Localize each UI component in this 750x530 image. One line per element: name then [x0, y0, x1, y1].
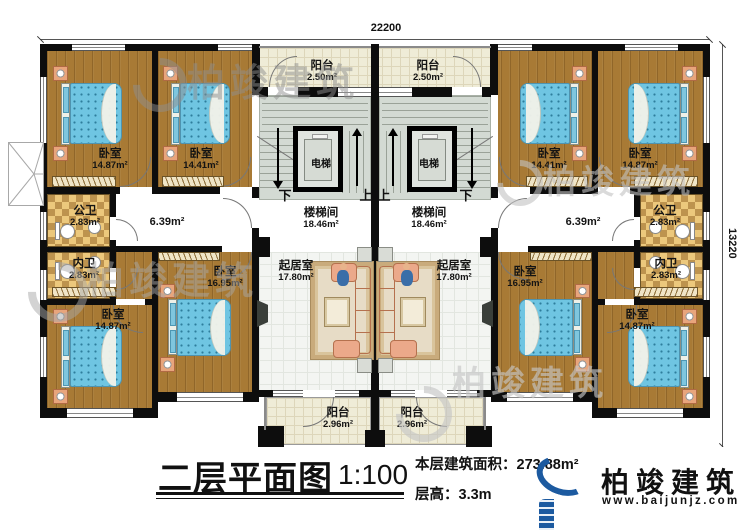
wardrobe	[634, 287, 698, 297]
brand-logo	[536, 457, 600, 519]
door-arc	[612, 219, 634, 241]
wardrobe	[530, 252, 592, 261]
label-public-bath-left: 公卫 2.83m²	[70, 205, 100, 229]
pillow	[571, 117, 577, 143]
stair-arrow	[392, 132, 394, 186]
floor-height-value: 3.3m	[459, 487, 492, 503]
watermark-name: 柏竣建筑	[187, 52, 359, 107]
label-stairwell-left: 楼梯间 18.46m²	[303, 207, 338, 231]
toilet	[690, 222, 695, 240]
bed-headboard	[573, 299, 582, 355]
label-bedroom-br2: 卧室 14.87m²	[619, 309, 654, 333]
roof-overhang-icon	[8, 142, 44, 206]
label-stair-down-left: 下	[278, 185, 291, 204]
side-table	[378, 358, 393, 373]
label-corridor-left: 6.39m²	[150, 216, 185, 228]
drawing-scale: 1:100	[338, 459, 408, 491]
watermark-name: 柏竣建筑	[543, 155, 695, 203]
label-living-right: 起居室 17.80m²	[436, 260, 471, 284]
bed	[520, 83, 570, 144]
title-underline	[156, 492, 404, 495]
wall-segment	[490, 44, 498, 95]
dimension-top-value: 22200	[371, 22, 402, 34]
side-table	[378, 247, 393, 262]
window	[617, 408, 683, 418]
window	[625, 44, 678, 51]
bed-sheet-fold	[634, 84, 649, 143]
floor-height-label: 层高：	[415, 487, 459, 503]
watermark-name: 柏竣建筑	[452, 356, 608, 405]
wall-segment	[634, 240, 640, 268]
label-stair-up-right: 上	[377, 185, 390, 204]
label-elevator-left: 电梯	[311, 155, 331, 170]
window	[703, 212, 710, 240]
label-balcony-bottom-left: 阳台 2.96m²	[323, 407, 353, 431]
nightstand	[682, 389, 697, 404]
pillow	[681, 360, 687, 386]
window	[379, 87, 412, 97]
window	[703, 77, 710, 143]
elevator-door	[422, 134, 438, 139]
pillow	[681, 330, 687, 356]
wall-segment	[480, 237, 493, 257]
pillow	[574, 303, 580, 326]
wall-segment	[379, 390, 391, 397]
watermark-name: 柏竣建筑	[86, 250, 258, 305]
wall-segment	[592, 408, 617, 418]
pillow	[681, 87, 687, 113]
bed	[519, 299, 573, 356]
bed-sheet-fold	[526, 84, 541, 143]
wall-segment	[482, 87, 491, 97]
label-elevator-right: 电梯	[419, 155, 439, 170]
window	[703, 337, 710, 377]
wall-segment	[640, 247, 710, 252]
title-underline-thin	[156, 498, 404, 499]
nightstand	[682, 66, 697, 81]
bed	[628, 83, 680, 144]
coffee-table	[400, 297, 426, 327]
balcony-rail	[379, 46, 491, 48]
label-stairwell-right: 楼梯间 18.46m²	[411, 207, 446, 231]
bed-headboard	[680, 326, 689, 388]
brand-logo-building-icon	[536, 495, 557, 530]
window	[498, 44, 532, 51]
window	[703, 270, 710, 300]
person-figure-head	[403, 263, 410, 270]
bed-headboard	[680, 83, 689, 145]
label-corridor-right: 6.39m²	[566, 216, 601, 228]
floor-plan-screenshot: 卧室 14.87m² 卧室 14.41m² 卧室 14.41m² 卧室 14.8…	[0, 0, 750, 530]
dimension-right-value: 13220	[726, 228, 738, 259]
label-bedroom-bl1: 卧室 14.87m²	[95, 309, 130, 333]
bed-headboard	[570, 83, 579, 145]
brand-logo-swoosh-icon	[531, 450, 594, 503]
floor-plan: 卧室 14.87m² 卧室 14.41m² 卧室 14.41m² 卧室 14.8…	[0, 0, 750, 460]
nightstand	[575, 284, 590, 298]
label-balcony-top-right: 阳台 2.50m²	[413, 60, 443, 84]
bed-sheet-fold	[634, 327, 649, 386]
label-ensuite-bath-right: 内卫 2.83m²	[651, 258, 681, 282]
label-living-left: 起居室 17.80m²	[278, 260, 313, 284]
label-stair-down-right: 下	[459, 185, 472, 204]
label-bedroom-tl2: 卧室 14.41m²	[183, 148, 218, 172]
wall-segment	[683, 408, 710, 418]
label-public-bath-right: 公卫 2.83m²	[650, 205, 680, 229]
pillow	[571, 87, 577, 113]
bed	[628, 326, 680, 387]
pillow	[681, 117, 687, 143]
nightstand	[572, 66, 587, 81]
toilet	[690, 262, 695, 280]
title-block: 二层平面图 1:100 本层建筑面积：273.88m² 层高：3.3m 柏竣建筑…	[0, 447, 750, 530]
wall-segment	[375, 44, 379, 440]
dimension-line-right	[722, 44, 723, 447]
stair-arrow-head	[388, 123, 398, 136]
stair-treads	[380, 131, 408, 193]
dimension-line-top	[40, 39, 710, 40]
floor-area-label: 本层建筑面积：	[415, 457, 517, 473]
wall-segment	[412, 87, 452, 97]
armchair	[390, 340, 417, 358]
nightstand	[682, 309, 697, 324]
pillow	[574, 330, 580, 353]
wall-segment	[637, 299, 710, 305]
label-bedroom-tl1: 卧室 14.87m²	[92, 148, 127, 172]
label-bedroom-br1: 卧室 16.95m²	[507, 266, 542, 290]
label-stair-up-left: 上	[359, 185, 372, 204]
brand-website: www.baijunjz.com	[602, 495, 740, 507]
stair-arrow	[471, 128, 473, 182]
floor-height-stat: 层高：3.3m	[415, 483, 492, 504]
bed-sheet-fold	[525, 300, 540, 355]
person-figure	[401, 270, 413, 286]
